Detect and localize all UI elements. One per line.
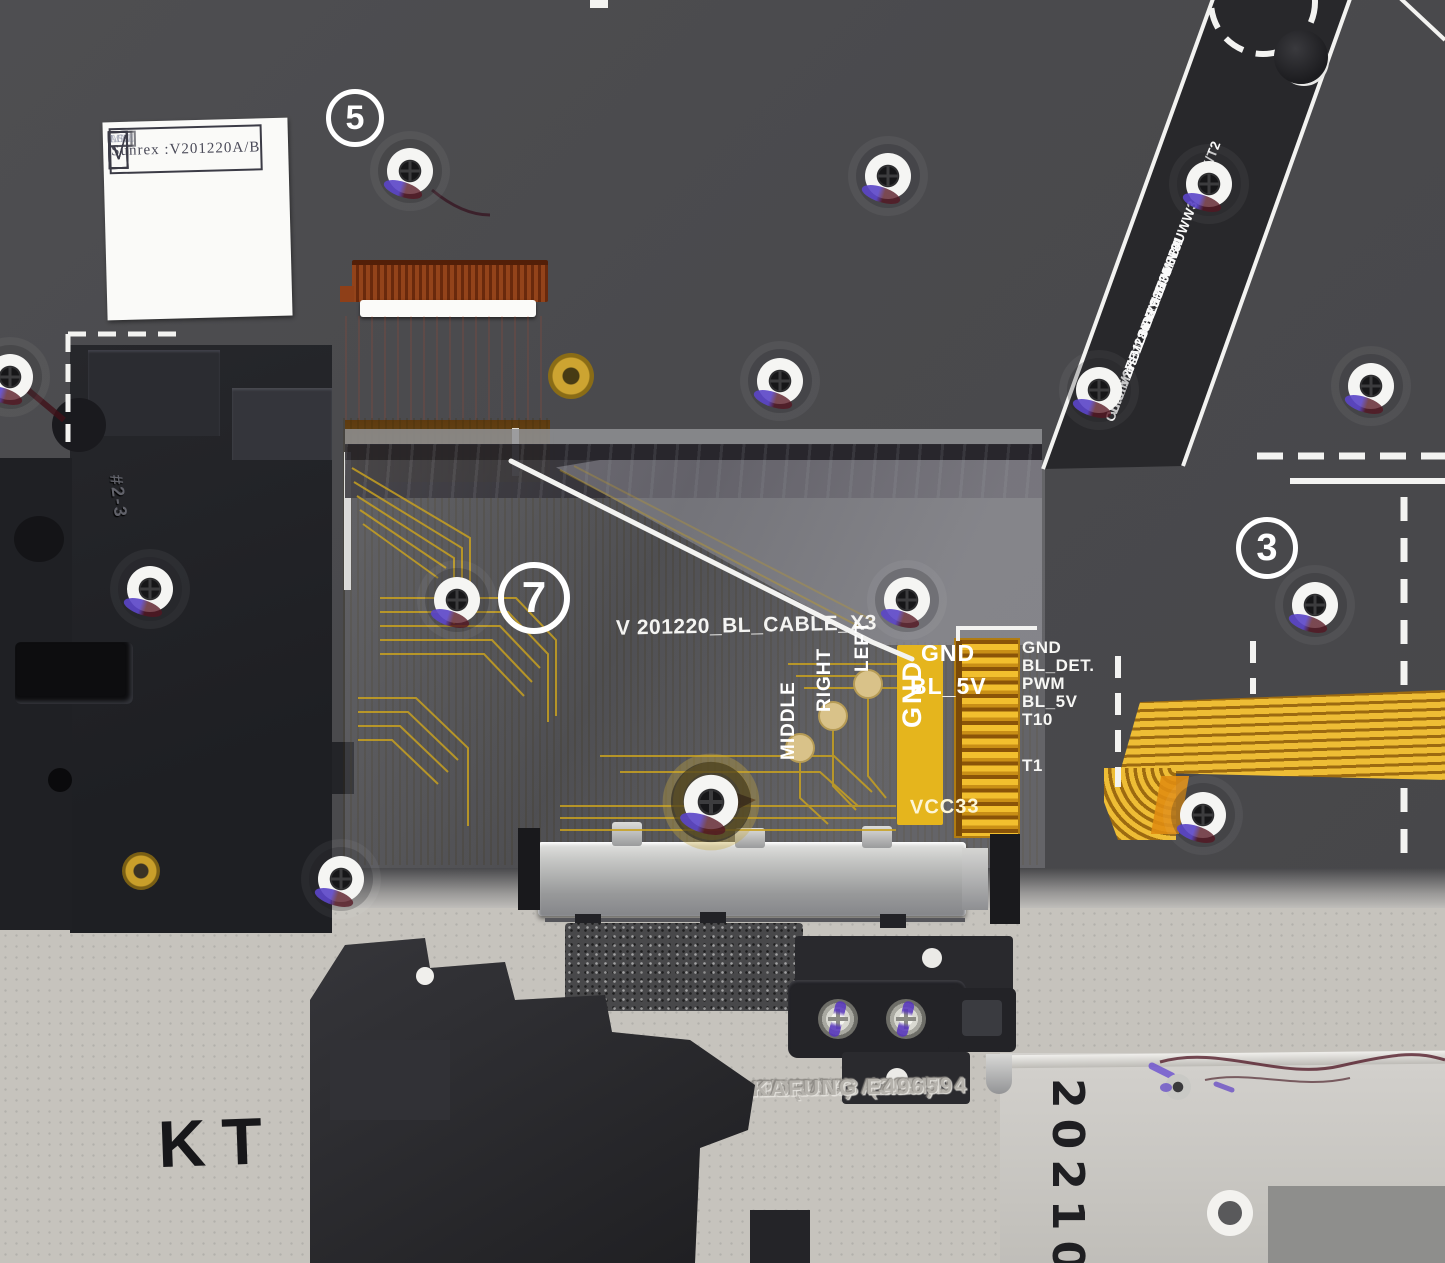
- bracket-slot: [962, 1000, 1002, 1036]
- bracket-hole: [416, 967, 434, 985]
- hinge-bracket: [788, 980, 966, 1058]
- assembly-cutout: [15, 642, 133, 704]
- right-pad-label: RIGHT: [814, 632, 836, 712]
- bracket-tab: [735, 828, 765, 848]
- left-pad-label: LEFT: [852, 608, 874, 672]
- screw: [886, 999, 926, 1039]
- pin-label: PWM: [1022, 674, 1065, 694]
- plastic-piece: [750, 1210, 810, 1263]
- assembly-panel: [88, 350, 220, 436]
- bracket-tab: [612, 822, 642, 846]
- rubber-bumper: [1274, 30, 1328, 84]
- mounting-hole: [1207, 1190, 1253, 1236]
- screw: [818, 999, 858, 1039]
- ink-stamp: KT: [157, 1102, 280, 1182]
- bl5v-label: BL_5V: [910, 673, 987, 700]
- bracket-extension: [962, 848, 988, 910]
- pin-label: GND: [1022, 638, 1061, 658]
- bracket-end-cap: [518, 828, 540, 910]
- pin-label: BL_DET.: [1022, 656, 1094, 676]
- screw: [1186, 161, 1232, 207]
- keyboard-flex-ribbon: [345, 316, 550, 422]
- date-code-stamp: 20210: [1042, 1078, 1093, 1263]
- pin-label: T1: [1022, 756, 1043, 776]
- step-number-7: 7: [498, 562, 570, 634]
- trackpad-dark-panel: [1268, 1186, 1445, 1263]
- label-check-table: LFC LOT MDL ASM √ √ √ √: [109, 132, 112, 262]
- molded-circle: [52, 398, 106, 452]
- gnd-label: GND: [921, 640, 975, 667]
- tape-edge: [345, 429, 1042, 445]
- pin-label: BL_5V: [1022, 692, 1077, 712]
- screw: [434, 577, 480, 623]
- assembly-panel: [232, 388, 332, 460]
- screw: [884, 577, 930, 623]
- bracket-panel: [330, 1040, 450, 1120]
- screw: [127, 566, 173, 612]
- check-mark: √: [108, 131, 129, 170]
- brass-standoff: [548, 353, 594, 399]
- brass-grommet: [122, 852, 160, 890]
- pin-label: T10: [1022, 710, 1053, 730]
- bracket-hole: [922, 948, 942, 968]
- assembly-hole: [48, 768, 72, 792]
- connector-pin-labels: GND BL_DET. PWM BL_5V T10 T1: [1022, 638, 1112, 788]
- laptop-internal-photo: #2-3 GND GND BL_5V VCC33 GND BL_DET. PWM…: [0, 0, 1445, 1263]
- molded-circle: [14, 516, 64, 562]
- screw: [318, 856, 364, 902]
- screw: [1165, 1074, 1191, 1100]
- bracket-tab: [862, 826, 892, 848]
- screw: [684, 775, 738, 829]
- screw: [387, 148, 433, 194]
- screw: [757, 358, 803, 404]
- step-number-5: 5: [326, 89, 384, 147]
- screw: [865, 153, 911, 199]
- middle-pad-label: MIDDLE: [778, 660, 800, 760]
- step-number-3: 3: [1236, 517, 1298, 579]
- sunrex-qc-label: Sunrex :V201220A/B LFC LOT MDL ASM √ √ √…: [102, 118, 292, 321]
- vcc33-label: VCC33: [910, 795, 980, 819]
- bracket-foot: [880, 914, 906, 928]
- screw: [1292, 582, 1338, 628]
- ribbon-tab: [340, 286, 354, 302]
- screw: [1076, 367, 1122, 413]
- bracket-end-cap: [990, 834, 1020, 924]
- screw: [1348, 363, 1394, 409]
- zif-connector-bracket: [538, 842, 966, 916]
- ribbon-white-stripe: [360, 300, 536, 317]
- metal-hook: [986, 1054, 1012, 1094]
- ribbon-connector-teeth: [352, 260, 548, 302]
- screw: [1180, 792, 1226, 838]
